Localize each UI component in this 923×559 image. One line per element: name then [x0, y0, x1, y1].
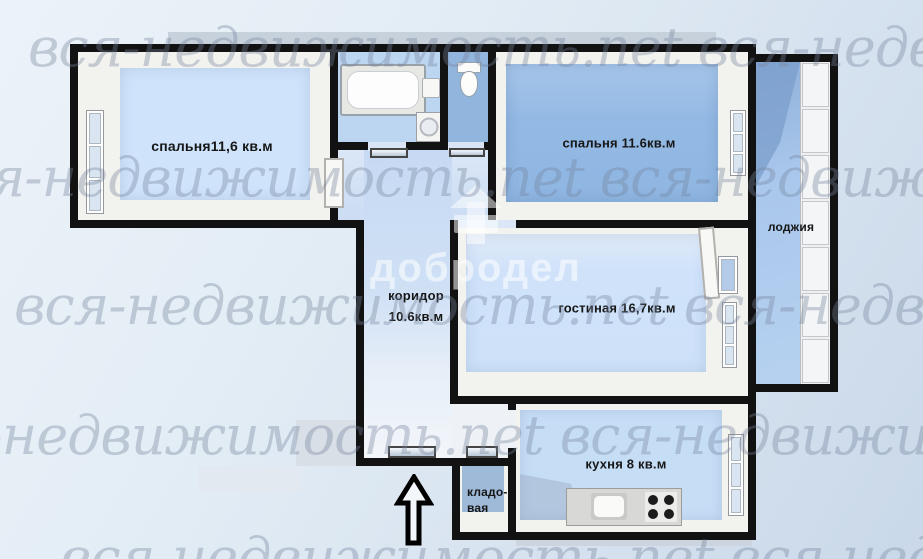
- window-pane: [731, 463, 741, 487]
- window: [722, 302, 737, 368]
- window-pane: [733, 154, 743, 173]
- door-threshold: [466, 446, 498, 458]
- storage-label-line1: кладо-: [467, 485, 508, 499]
- wall-segment: [338, 220, 364, 228]
- window-pane: [89, 113, 101, 144]
- window-pane: [725, 346, 734, 365]
- entrance-arrow-icon: [394, 474, 434, 546]
- floor-plan-canvas: спальня11,6 кв.м спальня 11.6кв.м лоджия…: [0, 0, 923, 559]
- washing-machine-icon: [416, 112, 442, 142]
- window-pane: [733, 134, 743, 153]
- door-gap-kitchen: [508, 410, 516, 448]
- window-pane: [725, 326, 734, 345]
- kitchen-sink-icon: [591, 493, 627, 520]
- door-threshold: [370, 148, 408, 158]
- window-pane: [721, 259, 735, 291]
- bedroom1-floor: [120, 68, 310, 200]
- wall-segment: [356, 220, 364, 466]
- room-bedroom-1: [70, 44, 338, 228]
- bathtub-icon: [340, 64, 426, 116]
- door-threshold: [388, 446, 436, 458]
- kitchen-label: кухня 8 кв.м: [585, 457, 666, 472]
- corridor-label-line1: коридор: [388, 285, 444, 306]
- building-shadow-left: [296, 420, 356, 466]
- door-leaf-bedroom1: [324, 158, 344, 208]
- bedroom2-label: спальня 11.6кв.м: [562, 136, 675, 151]
- building-shadow-bottom: [516, 540, 752, 546]
- corridor-label: коридор 10.6кв.м: [388, 285, 444, 327]
- window-pane: [731, 489, 741, 513]
- kitchen-counter: [566, 488, 682, 526]
- door-gap-living: [458, 220, 516, 228]
- toilet-bowl-icon: [460, 71, 478, 97]
- bedroom1-label: спальня11,6 кв.м: [151, 138, 273, 154]
- storage-label-line2: вая: [467, 501, 489, 515]
- balcony-window: [718, 256, 738, 294]
- wall-segment: [356, 458, 460, 466]
- window: [730, 110, 746, 176]
- building-shadow-left-low: [198, 466, 302, 492]
- sink-icon: [422, 78, 440, 98]
- window: [86, 110, 104, 214]
- window-pane: [89, 146, 101, 177]
- corridor-label-line2: 10.6кв.м: [388, 306, 444, 327]
- window-pane: [89, 180, 101, 211]
- room-bathroom: [330, 44, 448, 150]
- room-storage: [452, 458, 516, 540]
- stove-icon: [645, 492, 677, 522]
- window-pane: [733, 113, 743, 132]
- loggia-label: лоджия: [768, 220, 814, 234]
- bedroom2-floor: [506, 64, 718, 202]
- living-label: гостиная 16,7кв.м: [558, 301, 675, 316]
- window: [728, 434, 744, 516]
- door-threshold: [449, 148, 485, 157]
- window-pane: [725, 305, 734, 324]
- window-pane: [731, 437, 741, 461]
